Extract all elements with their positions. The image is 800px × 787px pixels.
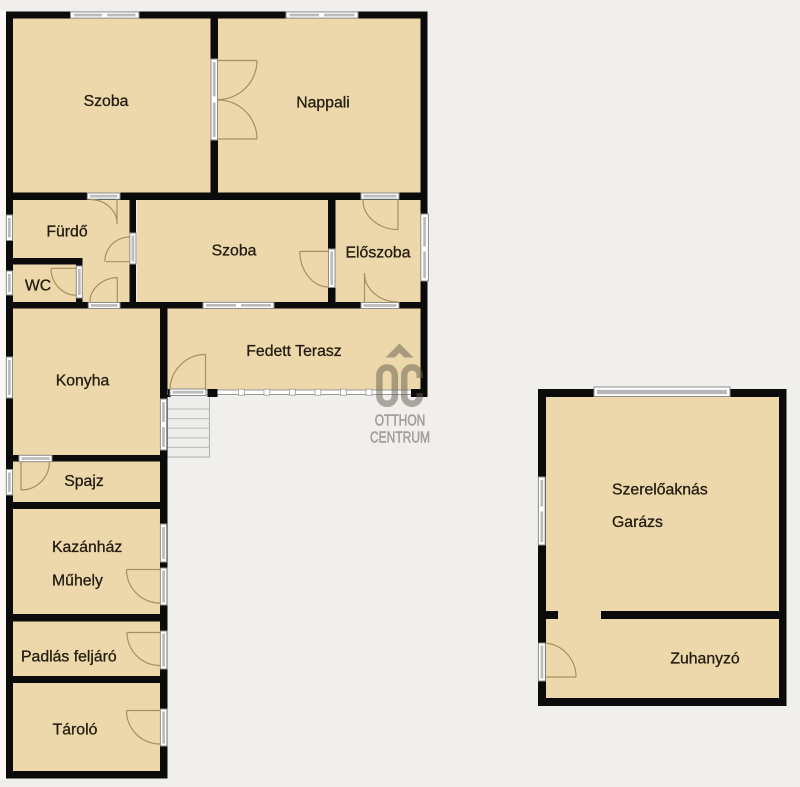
svg-text:Spajz: Spajz bbox=[64, 473, 104, 490]
svg-text:Garázs: Garázs bbox=[612, 514, 663, 531]
svg-text:Zuhanyzó: Zuhanyzó bbox=[670, 651, 740, 668]
svg-text:WC: WC bbox=[25, 278, 51, 295]
svg-text:Előszoba: Előszoba bbox=[346, 245, 411, 262]
svg-text:CENTRUM: CENTRUM bbox=[370, 428, 430, 446]
svg-text:Fedett Terasz: Fedett Terasz bbox=[246, 343, 342, 360]
svg-text:Szerelőaknás: Szerelőaknás bbox=[612, 482, 708, 499]
svg-text:Kazánház: Kazánház bbox=[52, 539, 122, 556]
svg-text:Műhely: Műhely bbox=[52, 573, 103, 590]
svg-text:Konyha: Konyha bbox=[56, 373, 110, 390]
svg-text:Szoba: Szoba bbox=[84, 93, 129, 110]
svg-text:OTTHON: OTTHON bbox=[375, 411, 426, 429]
svg-text:Szoba: Szoba bbox=[212, 243, 257, 260]
svg-text:Fürdő: Fürdő bbox=[46, 224, 87, 241]
svg-text:Tároló: Tároló bbox=[53, 722, 98, 739]
svg-text:Padlás feljáró: Padlás feljáró bbox=[21, 649, 117, 666]
svg-text:Nappali: Nappali bbox=[296, 95, 350, 112]
